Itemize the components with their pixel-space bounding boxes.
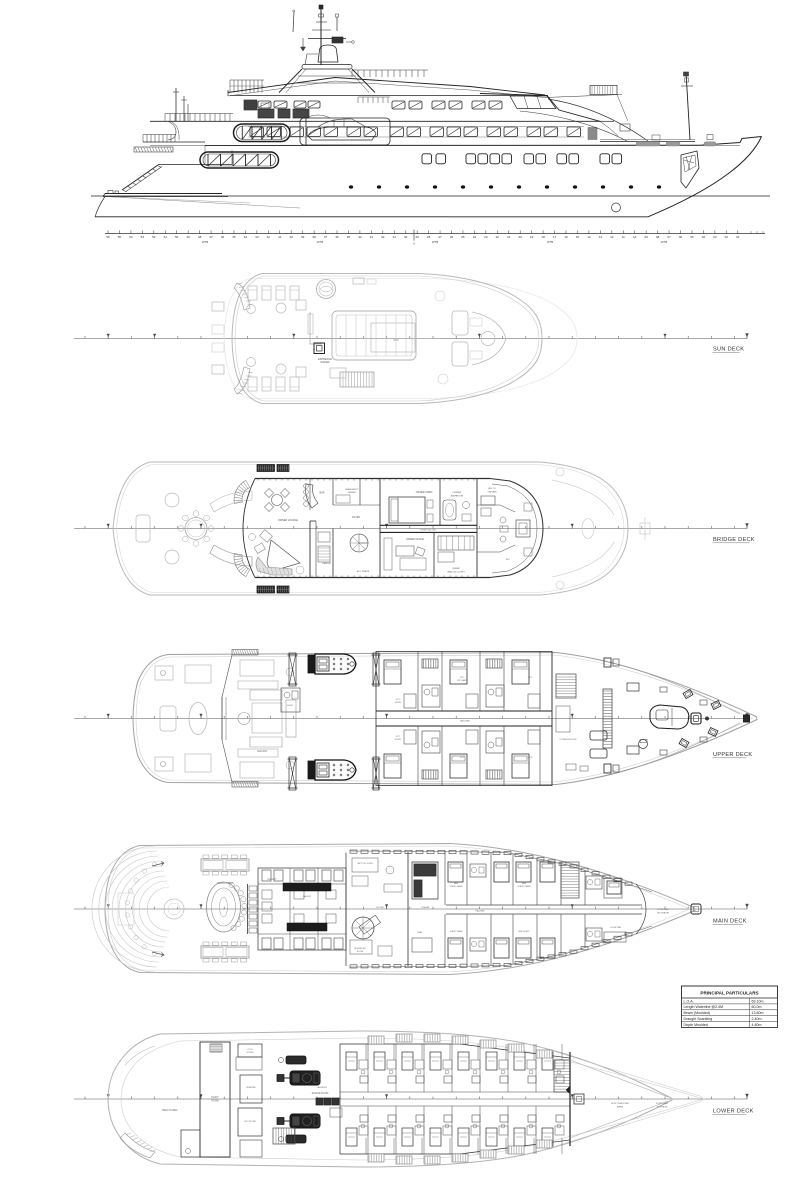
svg-text:HOSPITAL: HOSPITAL	[611, 926, 622, 929]
svg-text:SPRINKLER: SPRINKLER	[354, 948, 366, 950]
svg-text:WH. TO: WH. TO	[488, 488, 496, 490]
svg-text:19: 19	[530, 235, 534, 239]
svg-text:48: 48	[198, 235, 202, 239]
svg-text:45: 45	[232, 235, 236, 239]
svg-text:25: 25	[461, 235, 465, 239]
svg-text:60.0m: 60.0m	[752, 1005, 762, 1009]
svg-text:27: 27	[438, 235, 442, 239]
svg-text:MINI: MINI	[454, 883, 458, 885]
svg-text:EXT. STAIRS: EXT. STAIRS	[357, 570, 370, 573]
svg-text:12: 12	[610, 235, 614, 239]
svg-text:39: 39	[301, 235, 305, 239]
svg-text:42: 42	[267, 235, 271, 239]
svg-text:WTB: WTB	[202, 240, 208, 244]
svg-text:PANTRY: PANTRY	[323, 562, 332, 565]
svg-text:FOYER: FOYER	[352, 517, 360, 519]
svg-text:13: 13	[599, 235, 603, 239]
svg-text:22: 22	[496, 235, 500, 239]
svg-text:09: 09	[644, 235, 648, 239]
svg-text:41: 41	[278, 235, 282, 239]
svg-text:MAKER: MAKER	[321, 361, 330, 364]
svg-text:FOYER: FOYER	[376, 907, 384, 909]
svg-text:47: 47	[209, 235, 213, 239]
svg-text:49: 49	[186, 235, 190, 239]
svg-text:30: 30	[404, 235, 408, 239]
svg-text:OWNER OFFICE: OWNER OFFICE	[406, 539, 424, 541]
svg-text:BOW THRUSTER: BOW THRUSTER	[611, 1103, 629, 1105]
svg-text:32: 32	[381, 235, 385, 239]
svg-text:VIP CABIN: VIP CABIN	[457, 679, 468, 682]
svg-text:OWNER CABIN: OWNER CABIN	[416, 491, 433, 494]
svg-text:WTB: WTB	[432, 240, 438, 244]
svg-text:FITNESS ROOM: FITNESS ROOM	[560, 739, 577, 741]
svg-text:13.80m: 13.80m	[752, 1011, 764, 1015]
svg-text:GUEST CABIN: GUEST CABIN	[450, 885, 463, 888]
svg-text:50: 50	[175, 235, 179, 239]
svg-text:STORAGE: STORAGE	[657, 1106, 668, 1109]
svg-text:04: 04	[702, 235, 706, 239]
svg-text:PRINCIPAL PARTICULARS: PRINCIPAL PARTICULARS	[700, 990, 758, 995]
svg-text:56: 56	[106, 235, 110, 239]
svg-text:02: 02	[725, 235, 729, 239]
svg-text:GUEST CABIN: GUEST CABIN	[518, 885, 531, 888]
svg-text:OWNER: OWNER	[453, 492, 462, 494]
svg-text:BATHROOM: BATHROOM	[451, 495, 464, 498]
svg-text:UPPER DECK: UPPER DECK	[713, 752, 752, 758]
svg-text:BRIDGE DECK: BRIDGE DECK	[713, 537, 755, 543]
svg-text:BAR: BAR	[320, 492, 325, 495]
svg-text:CINEMA: CINEMA	[421, 906, 429, 909]
svg-text:17: 17	[553, 235, 557, 239]
svg-text:38: 38	[312, 235, 316, 239]
svg-text:44: 44	[244, 235, 248, 239]
svg-text:69.10m: 69.10m	[752, 999, 764, 1003]
svg-text:OWNER LOUNGE: OWNER LOUNGE	[278, 519, 298, 522]
svg-text:46: 46	[221, 235, 225, 239]
svg-text:29: 29	[415, 235, 419, 239]
svg-text:4.80m: 4.80m	[752, 1023, 762, 1027]
svg-text:11: 11	[622, 235, 625, 239]
svg-text:OWNER HALLWAY: OWNER HALLWAY	[420, 529, 437, 532]
svg-text:SALOON: SALOON	[257, 750, 267, 753]
svg-text:GALLEY: GALLEY	[268, 878, 277, 881]
svg-text:26: 26	[450, 235, 454, 239]
svg-text:40: 40	[290, 235, 294, 239]
svg-text:31: 31	[393, 235, 397, 239]
svg-text:Beam (Moulded): Beam (Moulded)	[684, 1011, 711, 1015]
svg-text:15: 15	[576, 235, 580, 239]
svg-text:GENSET: GENSET	[348, 492, 357, 494]
svg-text:CAPT. P.A. OFFICE: CAPT. P.A. OFFICE	[357, 862, 374, 865]
svg-text:23: 23	[484, 235, 488, 239]
svg-text:03: 03	[713, 235, 717, 239]
svg-text:34: 34	[358, 235, 362, 239]
svg-text:07: 07	[667, 235, 671, 239]
svg-text:14: 14	[587, 235, 591, 239]
svg-text:FREEZER: FREEZER	[246, 1087, 256, 1089]
svg-text:SUN DECK: SUN DECK	[713, 347, 744, 353]
svg-text:37: 37	[324, 235, 328, 239]
svg-text:L.O.A.: L.O.A.	[684, 999, 694, 1003]
svg-text:2.40m: 2.40m	[752, 1017, 762, 1021]
svg-text:MINI GUEST: MINI GUEST	[518, 931, 530, 933]
svg-text:20: 20	[519, 235, 523, 239]
svg-text:MINI: MINI	[522, 883, 526, 885]
svg-text:24: 24	[473, 235, 477, 239]
svg-text:PLANT: PLANT	[211, 1096, 219, 1099]
svg-text:52: 52	[152, 235, 156, 239]
svg-text:WTB: WTB	[661, 240, 667, 244]
svg-text:HVAC: HVAC	[417, 931, 423, 934]
svg-text:W.C.: W.C.	[506, 559, 511, 561]
svg-text:(STORAGE): (STORAGE)	[657, 912, 669, 915]
svg-text:BEACH AREA: BEACH AREA	[162, 1109, 178, 1112]
svg-text:SPA: SPA	[393, 338, 399, 342]
svg-text:MAIN DECK: MAIN DECK	[713, 919, 747, 925]
svg-text:36: 36	[335, 235, 339, 239]
svg-text:HALLWAY: HALLWAY	[460, 720, 471, 723]
svg-text:54: 54	[129, 235, 133, 239]
svg-text:Length Waterline @2.4M: Length Waterline @2.4M	[684, 1005, 724, 1009]
svg-text:06: 06	[679, 235, 683, 239]
svg-text:GUEST CABIN: GUEST CABIN	[450, 930, 463, 933]
svg-text:Draught Scantling: Draught Scantling	[684, 1017, 713, 1021]
svg-text:21: 21	[507, 235, 511, 239]
svg-text:LAUNDRY: LAUNDRY	[317, 1086, 328, 1089]
svg-text:ENGINE ROOM: ENGINE ROOM	[312, 1093, 329, 1095]
svg-text:AREA: AREA	[617, 1106, 623, 1109]
svg-text:EMERGENCY: EMERGENCY	[345, 489, 359, 491]
svg-text:53: 53	[141, 235, 145, 239]
svg-text:28: 28	[427, 235, 431, 239]
svg-text:ROOM: ROOM	[357, 951, 364, 953]
svg-text:WTB: WTB	[317, 240, 323, 244]
svg-text:55: 55	[118, 235, 122, 239]
svg-text:18: 18	[541, 235, 545, 239]
svg-text:01: 01	[736, 235, 740, 239]
svg-text:WALK-IN CLOSET: WALK-IN CLOSET	[447, 571, 465, 574]
svg-text:ROOM: ROOM	[211, 1101, 218, 1103]
svg-text:CAPTAIN: CAPTAIN	[488, 491, 497, 494]
svg-text:DRY STORE: DRY STORE	[244, 1121, 256, 1123]
svg-text:OWNER: OWNER	[452, 568, 460, 570]
svg-text:16: 16	[564, 235, 568, 239]
svg-text:GUEST: GUEST	[287, 705, 294, 707]
svg-text:GALLEY: GALLEY	[303, 895, 312, 898]
svg-text:WTB: WTB	[547, 240, 553, 244]
svg-text:SUITE: SUITE	[395, 739, 402, 741]
svg-text:10: 10	[633, 235, 637, 239]
svg-text:35: 35	[347, 235, 351, 239]
svg-text:33: 33	[370, 235, 374, 239]
svg-text:08: 08	[656, 235, 660, 239]
svg-text:STORE: STORE	[246, 1052, 254, 1054]
svg-text:05: 05	[690, 235, 694, 239]
svg-text:FOREPEAK: FOREPEAK	[657, 908, 669, 911]
svg-text:COLD: COLD	[247, 1049, 253, 1051]
svg-text:LOWER DECK: LOWER DECK	[713, 1109, 754, 1115]
svg-text:43: 43	[255, 235, 259, 239]
svg-text:51: 51	[164, 235, 168, 239]
svg-text:Depth Moulded: Depth Moulded	[684, 1023, 708, 1027]
svg-text:HALLWAY: HALLWAY	[475, 910, 485, 913]
svg-text:SUITE: SUITE	[395, 702, 402, 704]
